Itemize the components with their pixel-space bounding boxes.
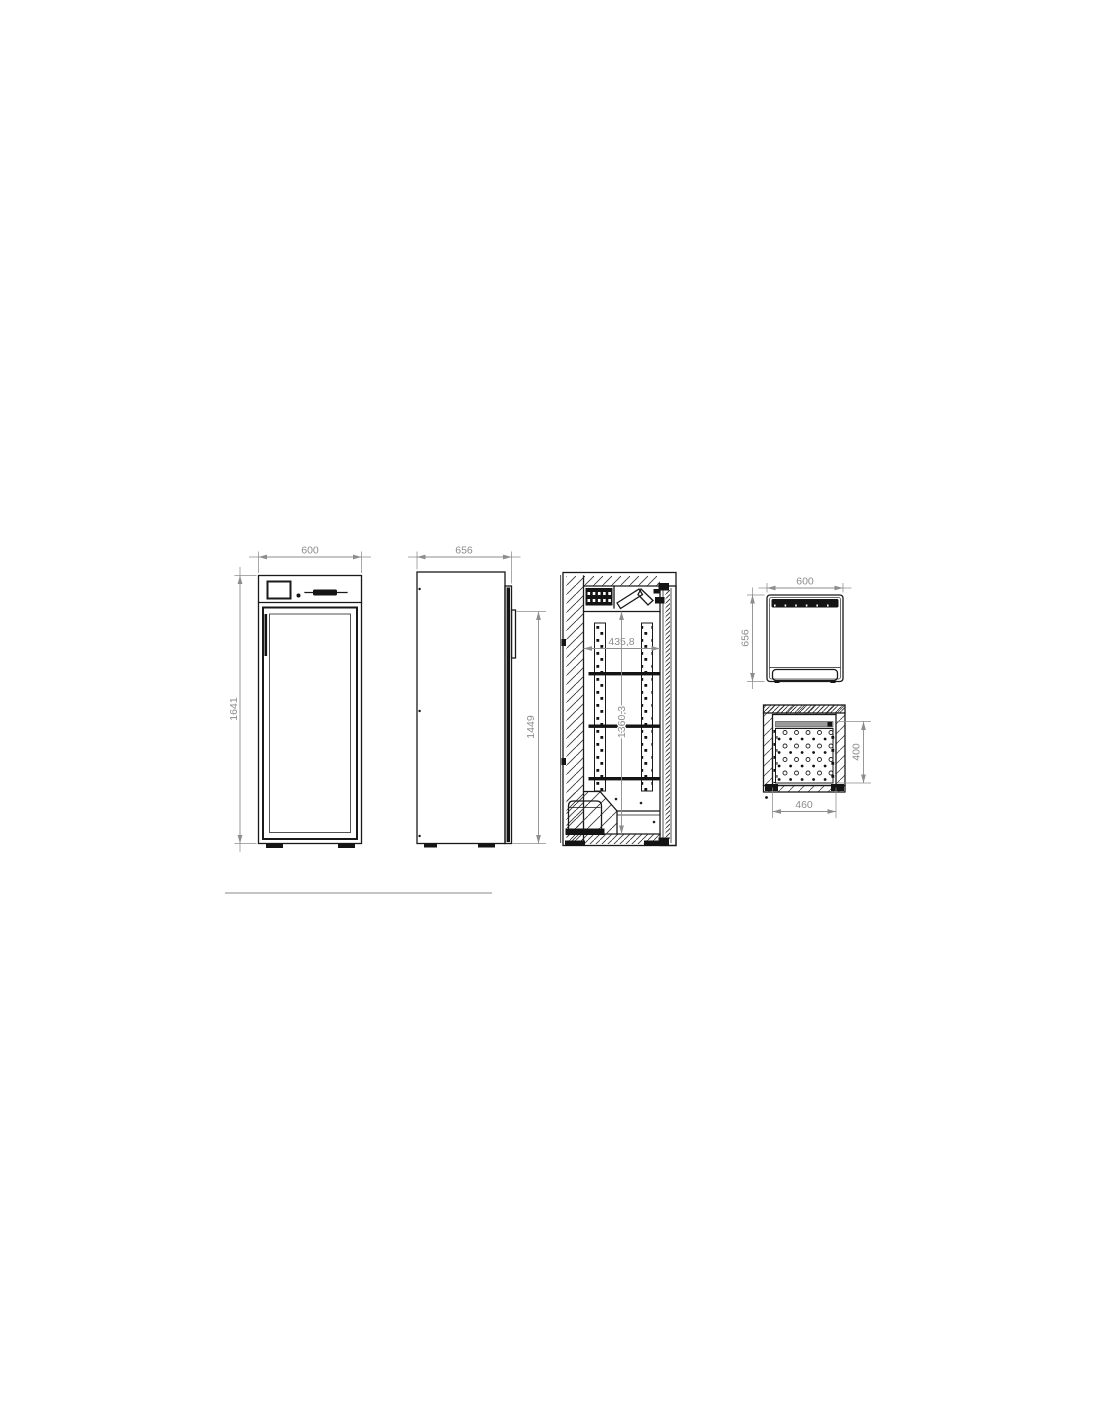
foot-left: [266, 844, 283, 849]
mounting-bar: [776, 722, 834, 728]
dim-front-width: 600: [249, 545, 371, 574]
dim-label-plate-width: 460: [795, 799, 813, 811]
dim-label-door-height: 1449: [525, 715, 537, 739]
damper-flap: [617, 589, 665, 609]
condenser-grille: [772, 599, 839, 608]
bottom-view: [764, 705, 846, 799]
foot-right: [478, 844, 495, 848]
door-section: [659, 583, 677, 846]
dim-top-width: 600: [759, 576, 852, 593]
foot-left: [424, 844, 437, 848]
foot-right: [338, 844, 355, 849]
dim-label-front-width: 600: [301, 545, 319, 557]
shelf-3: [589, 777, 660, 780]
dim-top-depth: 656: [740, 588, 765, 690]
dim-front-height: 1641: [228, 567, 257, 852]
shelf-1: [589, 672, 660, 675]
perforated-plate: [776, 729, 834, 784]
dim-label-top-width: 600: [796, 576, 814, 588]
dim-label-inner-height: 1360,3: [616, 706, 628, 738]
back-edge: [764, 705, 846, 713]
door-handle: [512, 610, 516, 658]
dim-side-depth: 656: [408, 545, 521, 584]
dim-label-plate-depth: 400: [851, 743, 863, 761]
glass-door: [263, 608, 357, 840]
door-hinge-strip: [265, 614, 268, 656]
fan-unit: [586, 586, 615, 608]
technical-drawing-page: 600 1641 656 1449: [0, 0, 1100, 1422]
insulation-top: [584, 576, 661, 586]
drawing-svg: 600 1641 656 1449: [0, 0, 1100, 1422]
brand-logo-bar: [305, 590, 347, 596]
front-view: [259, 576, 362, 849]
dim-label-front-height: 1641: [228, 697, 240, 721]
machine-compartment-wall: [567, 792, 618, 835]
dim-label-side-depth: 656: [455, 545, 473, 557]
dim-label-top-depth: 656: [740, 629, 752, 647]
indicator-dot: [297, 594, 301, 598]
top-view: [767, 595, 843, 683]
dim-side-door-height: 1449: [513, 612, 547, 844]
display-panel: [268, 582, 291, 599]
side-view: [417, 572, 516, 848]
